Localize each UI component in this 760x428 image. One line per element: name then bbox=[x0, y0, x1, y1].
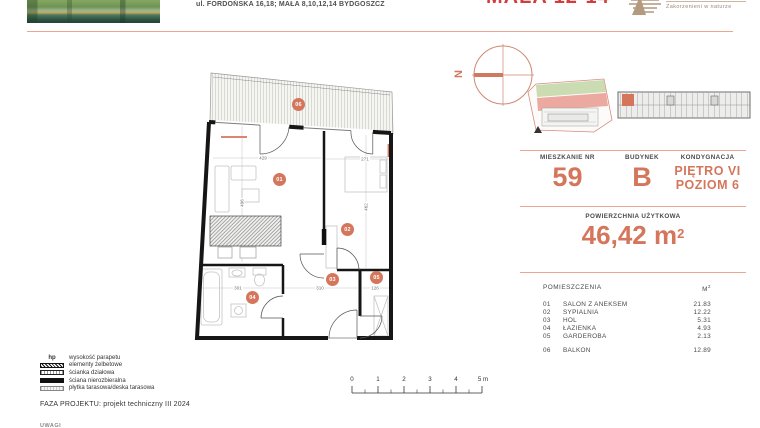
room-label-balkon: 06 bbox=[292, 98, 305, 111]
legend-row: hp wysokość parapetu bbox=[40, 354, 230, 362]
legend-label: ściana nierozbieralna bbox=[69, 378, 126, 384]
building-value: B bbox=[632, 164, 652, 191]
floorplan-sheet: ul. FORDOŃSKA 16,18; MAŁA 8,10,12,14 BYD… bbox=[0, 0, 760, 428]
notes-label: UWAGI bbox=[40, 423, 61, 428]
table-row: 05 GARDEROBA 2.13 bbox=[543, 333, 711, 341]
rooms-table-header: POMIESZCZENIA M2 bbox=[543, 284, 711, 293]
apartment-number-value: 59 bbox=[552, 164, 582, 191]
table-row-balkon: 06 BALKON 12.89 bbox=[543, 347, 711, 355]
table-row: 01 SALON Z ANEKSEM 21.83 bbox=[543, 301, 711, 309]
building-label: BUDYNEK bbox=[625, 154, 659, 161]
building-field: BUDYNEK B bbox=[615, 154, 669, 193]
room-label-salon: 01 bbox=[273, 173, 286, 186]
header-address: ul. FORDOŃSKA 16,18; MAŁA 8,10,12,14 BYD… bbox=[196, 1, 436, 8]
nature-photo bbox=[27, 0, 160, 23]
panel-divider bbox=[520, 150, 746, 151]
table-row: 04 ŁAZIENKA 4.93 bbox=[543, 325, 711, 333]
rooms-header-name: POMIESZCZENIA bbox=[543, 284, 602, 293]
rooms-header-unit: M2 bbox=[702, 284, 711, 293]
dimension-label: 429 bbox=[258, 156, 268, 161]
table-row: 02 SYPIALNIA 12.22 bbox=[543, 309, 711, 317]
legend-label: elementy żelbetowe bbox=[69, 362, 122, 368]
room-label-sypialnia: 02 bbox=[341, 223, 354, 236]
legend-row: płytka tarasowa/deska tarasowa bbox=[40, 384, 230, 392]
usable-area-value: 46,42 m2 bbox=[520, 222, 746, 248]
room-label-hol: 03 bbox=[326, 273, 339, 286]
floor-plan-drawing bbox=[185, 58, 425, 350]
building-plan-thumbnail bbox=[615, 82, 757, 132]
dimension-label: 462 bbox=[364, 202, 369, 212]
dimension-label: 126 bbox=[370, 286, 380, 291]
legend-row: ściana nierozbieralna bbox=[40, 377, 230, 385]
table-row: 03 HOL 5.31 bbox=[543, 317, 711, 325]
legend-row: elementy żelbetowe bbox=[40, 362, 230, 370]
legend-row: ścianka działowa bbox=[40, 369, 230, 377]
panel-divider bbox=[520, 206, 746, 207]
room-label-lazienka: 04 bbox=[246, 291, 259, 304]
legend-swatch-solid-wall bbox=[40, 378, 64, 383]
plan-legend: hp wysokość parapetu elementy żelbetowe … bbox=[40, 354, 230, 392]
project-phase: FAZA PROJEKTU: projekt techniczny III 20… bbox=[40, 401, 190, 408]
legend-symbol-hp: hp bbox=[40, 355, 64, 361]
apartment-number-label: MIESZKANIE NR bbox=[540, 154, 595, 161]
dimension-label: 271 bbox=[360, 157, 370, 162]
scale-bar: 0 1 2 3 4 5 m bbox=[340, 376, 500, 398]
legend-label: ścianka działowa bbox=[69, 370, 114, 376]
dimension-label: 301 bbox=[233, 286, 243, 291]
floor-value: PIĘTRO VI POZIOM 6 bbox=[674, 164, 740, 193]
tree-logo-icon bbox=[625, 0, 665, 16]
legend-label: wysokość parapetu bbox=[69, 355, 120, 361]
floor-plan: 01 02 03 04 05 06 429 271 496 462 310 30… bbox=[185, 58, 425, 350]
apartment-number-field: MIESZKANIE NR 59 bbox=[520, 154, 615, 193]
floor-label: KONDYGNACJA bbox=[681, 154, 735, 161]
legend-label: płytka tarasowa/deska tarasowa bbox=[69, 385, 154, 391]
scale-bar-ticks bbox=[340, 376, 500, 398]
legend-swatch-partition bbox=[40, 370, 64, 375]
legend-swatch-hatch bbox=[40, 363, 64, 368]
panel-divider bbox=[520, 272, 746, 273]
floor-field: KONDYGNACJA PIĘTRO VI POZIOM 6 bbox=[669, 154, 746, 193]
project-title: MAŁA 12-14 bbox=[486, 0, 626, 7]
dimension-label: 496 bbox=[240, 198, 245, 208]
dimension-label: 310 bbox=[315, 286, 325, 291]
site-plan-thumbnail bbox=[522, 76, 614, 138]
legend-swatch-deck bbox=[40, 386, 64, 391]
logo-tagline: Zakorzenieni w naturze bbox=[666, 4, 732, 10]
header-divider bbox=[27, 31, 733, 32]
logo-rule bbox=[666, 1, 746, 2]
rooms-table: POMIESZCZENIA M2 01 SALON Z ANEKSEM 21.8… bbox=[543, 284, 711, 355]
room-label-garderoba: 05 bbox=[370, 271, 383, 284]
usable-area-label: POWIERZCHNIA UŻYTKOWA bbox=[520, 213, 746, 220]
apartment-info: MIESZKANIE NR 59 BUDYNEK B KONDYGNACJA P… bbox=[520, 154, 746, 193]
north-label: N bbox=[453, 70, 465, 78]
